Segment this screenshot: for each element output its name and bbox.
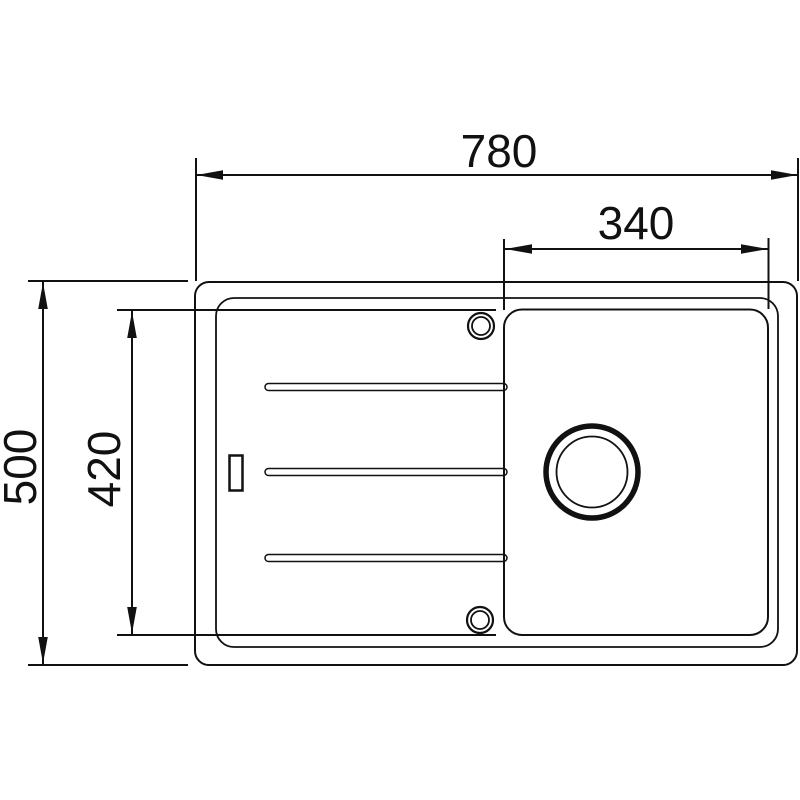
arrowhead-right [741,244,768,254]
overflow-slot [230,456,243,491]
dimension-label-bowl-inner-depth: 420 [78,431,130,508]
arrowhead-left [506,244,533,254]
arrowhead-bottom [127,607,137,634]
tap-hole-bottom-inner-ring [471,611,489,629]
drainboard-groove-bottom [265,555,507,562]
arrowhead-top [38,283,48,310]
drainboard-groove-top [265,384,507,391]
tap-hole-top-inner-ring [472,317,490,335]
arrowhead-top [127,312,137,339]
arrowhead-left [197,170,224,180]
arrowhead-bottom [38,637,48,664]
dimension-overall-width: 780 [196,125,798,281]
sink-outer-edge [195,282,797,665]
dimension-bowl-width: 340 [504,197,769,310]
sink-inner-rim [216,298,778,647]
dimension-label-overall-width: 780 [461,125,538,177]
drainboard-groove-middle [265,469,507,476]
drawing-canvas: 780 340 500 420 [0,0,800,800]
dimension-label-overall-depth: 500 [0,429,46,506]
drain-opening [546,426,638,518]
dimension-label-bowl-width: 340 [598,197,675,249]
drain-outer-ring [546,426,638,518]
sink-technical-drawing: 780 340 500 420 [0,0,800,800]
tap-hole-bottom [467,607,493,633]
drain-inner-ring [557,437,628,508]
dimension-bowl-inner-depth: 420 [78,310,496,635]
tap-hole-top [468,313,494,339]
arrowhead-right [771,170,798,180]
sink-body [195,282,797,665]
